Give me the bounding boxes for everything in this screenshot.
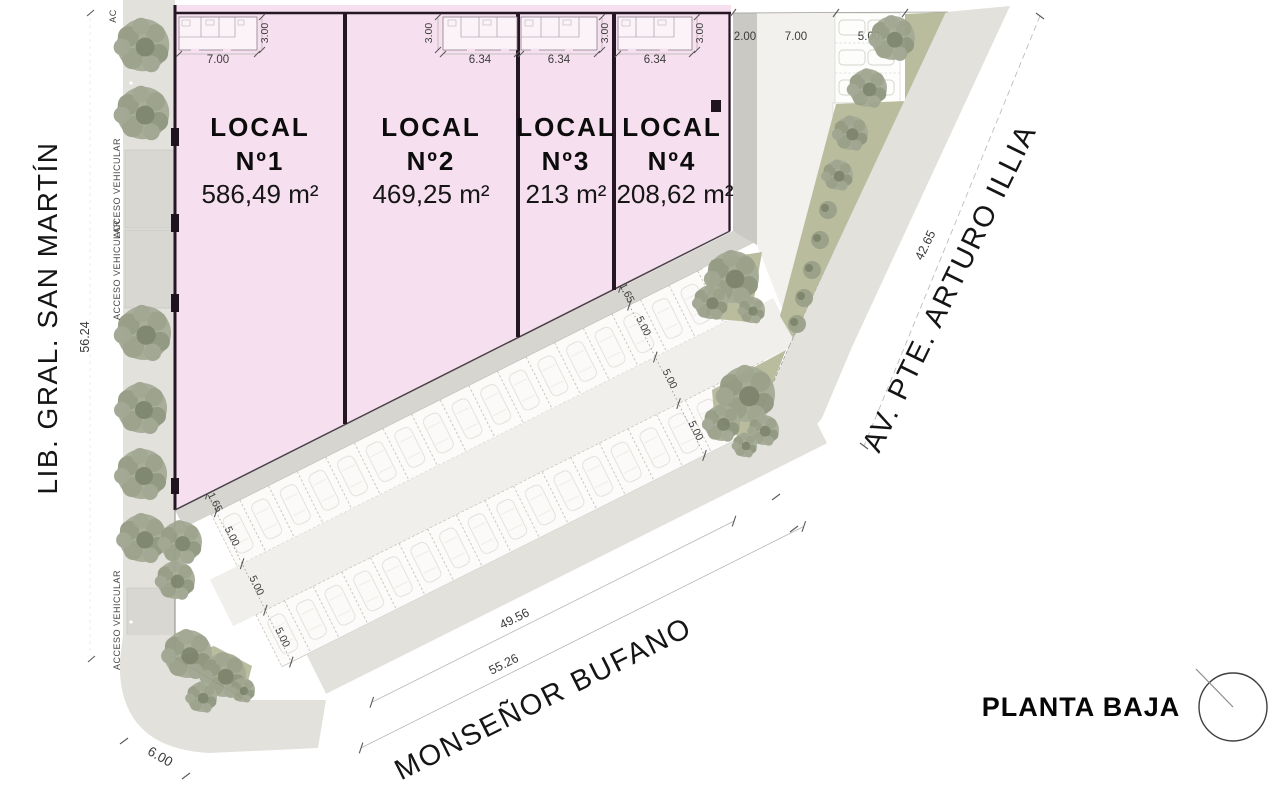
access-label: ACCESO VEHICULAR	[112, 570, 122, 670]
dim-local-width: 6.34	[469, 54, 492, 66]
local-number: Nº1	[236, 146, 285, 176]
local-area: 208,62 m²	[616, 179, 733, 209]
local-area: 213 m²	[526, 179, 607, 209]
access-label-short: AC	[108, 9, 118, 23]
north-indicator	[1196, 669, 1267, 741]
local-name: LOCAL	[516, 112, 616, 142]
east-sidewalk-strip	[733, 13, 757, 245]
local-number: Nº2	[407, 146, 456, 176]
page-title: PLANTA BAJA	[982, 692, 1181, 722]
dim-local-depth: 3.00	[599, 23, 611, 44]
dim-local-width: 6.34	[644, 54, 667, 66]
dim-local-depth: 3.00	[423, 23, 435, 44]
dim-avenue-frontage: 42.65	[912, 228, 938, 262]
dim-sidewalk: 2.00	[734, 31, 756, 43]
dim-frontage: 49.56	[497, 605, 531, 632]
access-label: ACCESO VEHICULAR	[112, 220, 122, 320]
dim-local-width: 6.34	[548, 54, 571, 66]
local-number: Nº4	[648, 146, 697, 176]
dim-local-depth: 3.00	[259, 23, 271, 44]
site-plan-canvas: 1.65 5.00 5.00 5.00 1.65 5.00 5.00 5.00 …	[0, 0, 1270, 798]
dim-local-depth: 3.00	[694, 23, 706, 44]
dim-corner: 6.00	[145, 744, 175, 770]
north-needle	[1196, 669, 1233, 707]
local-number: Nº3	[542, 146, 591, 176]
dim-local-width: 7.00	[207, 54, 229, 66]
left-street-dim: 56.24	[78, 10, 95, 662]
dim-total: 55.26	[487, 651, 521, 678]
dim-driveway: 7.00	[785, 31, 807, 43]
local-name: LOCAL	[210, 112, 310, 142]
street-name-left: LIB. GRAL. SAN MARTÍN	[32, 141, 63, 494]
site-plan-drawing: 1.65 5.00 5.00 5.00 1.65 5.00 5.00 5.00 …	[0, 0, 1270, 798]
vehicle-driveway	[125, 150, 175, 228]
local-name: LOCAL	[381, 112, 481, 142]
vehicle-driveway	[125, 230, 175, 308]
dim-left-frontage: 56.24	[78, 321, 92, 352]
local-name: LOCAL	[622, 112, 722, 142]
local-area: 586,49 m²	[201, 179, 318, 209]
local-area: 469,25 m²	[372, 179, 489, 209]
